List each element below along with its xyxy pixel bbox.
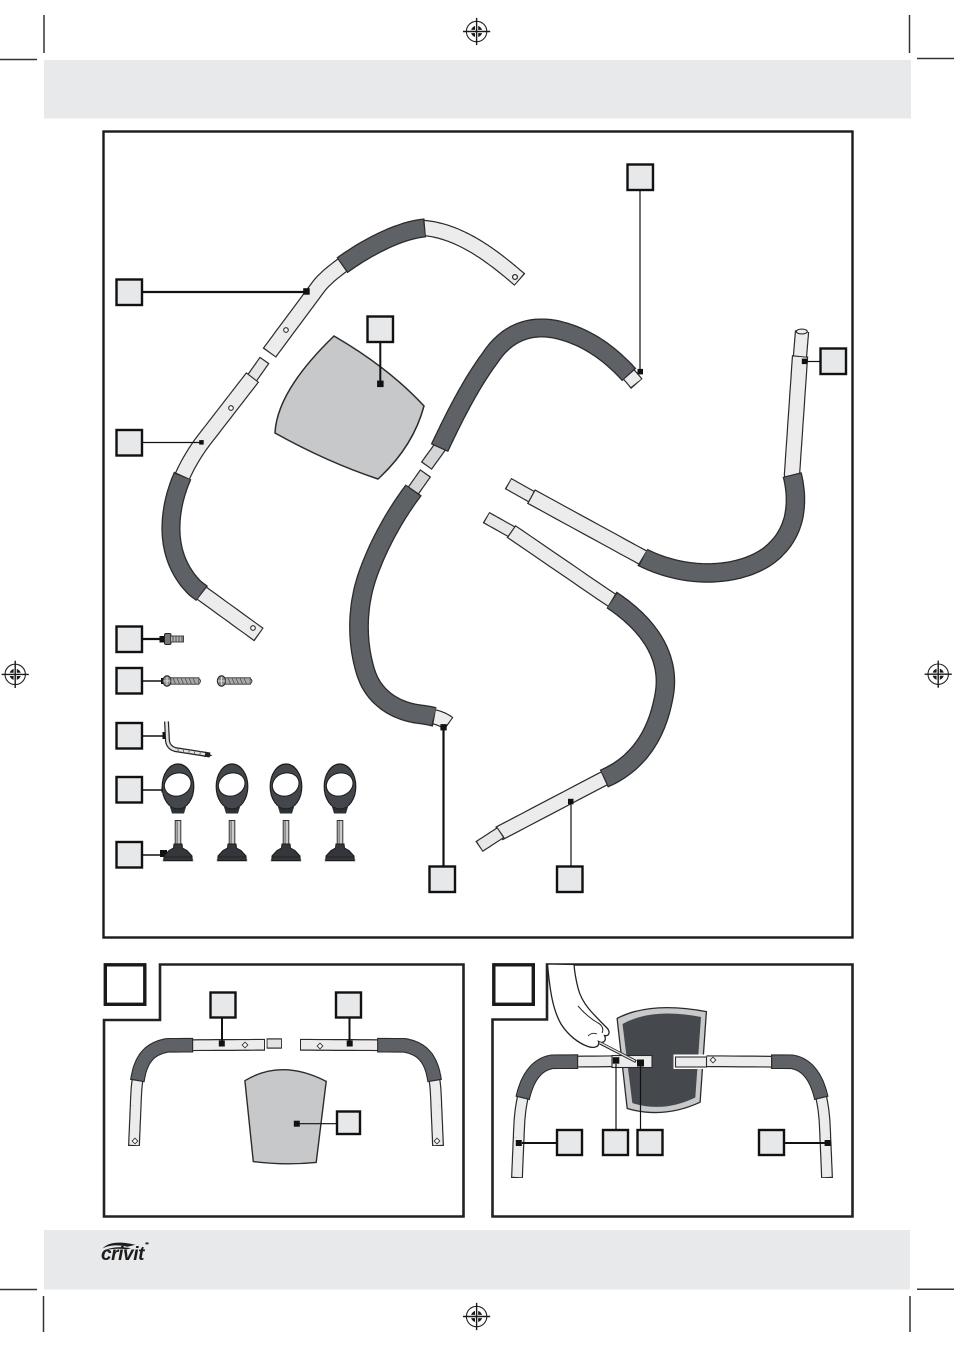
svg-text:crivit: crivit (101, 1244, 145, 1265)
